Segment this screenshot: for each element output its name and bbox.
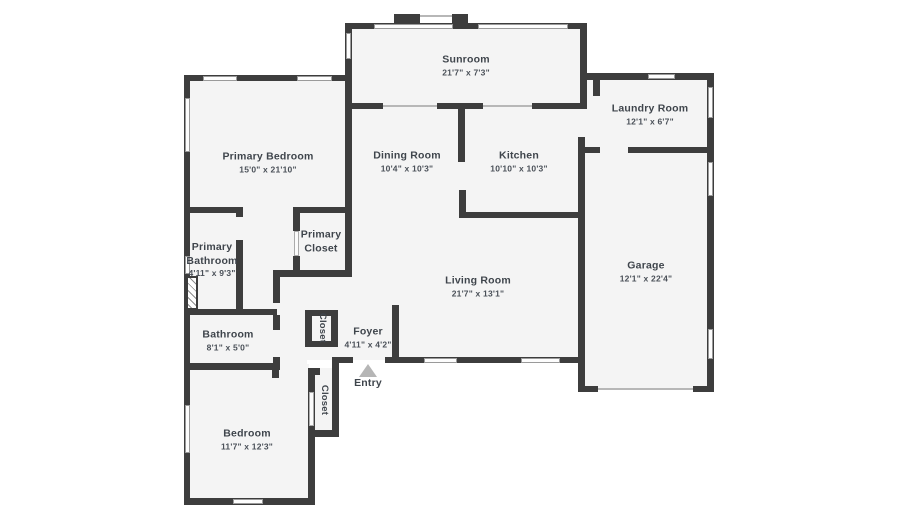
garage-door-line bbox=[598, 388, 693, 390]
window bbox=[648, 74, 675, 79]
window bbox=[185, 405, 190, 453]
window bbox=[233, 499, 263, 504]
room-name: Bathroom bbox=[183, 329, 273, 343]
floor-hall-strip bbox=[242, 211, 274, 311]
room-label-primary-bathroom: Primary Bathroom 4'11" x 9'3" bbox=[181, 241, 243, 279]
window bbox=[185, 98, 190, 152]
wall bbox=[332, 357, 339, 437]
room-label-foyer: Foyer 4'11" x 4'2" bbox=[338, 326, 398, 351]
room-name: Primary Bathroom bbox=[181, 241, 243, 268]
wall bbox=[308, 368, 320, 375]
wall bbox=[337, 357, 353, 363]
window bbox=[203, 76, 237, 81]
room-dims: 4'11" x 4'2" bbox=[338, 339, 398, 350]
wall bbox=[628, 147, 714, 153]
wall bbox=[272, 363, 279, 378]
room-name: Closet bbox=[318, 385, 330, 415]
room-dims: 8'1" x 5'0" bbox=[183, 342, 273, 353]
chimney-line bbox=[420, 15, 452, 17]
floor-bedroom-door bbox=[277, 364, 309, 372]
window bbox=[297, 76, 332, 81]
sliding-door-line bbox=[483, 105, 532, 107]
wall bbox=[580, 23, 587, 109]
room-label-laundry: Laundry Room 12'1" x 6'7" bbox=[595, 103, 705, 128]
room-dims: 12'1" x 6'7" bbox=[595, 116, 705, 127]
window bbox=[708, 329, 713, 359]
wall bbox=[275, 270, 352, 277]
wall bbox=[593, 80, 600, 96]
room-name: Primary Closet bbox=[296, 228, 346, 255]
room-name: Laundry Room bbox=[595, 103, 705, 117]
room-label-dining: Dining Room 10'4" x 10'3" bbox=[357, 150, 457, 175]
room-label-primary-bedroom: Primary Bedroom 15'0" x 21'10" bbox=[203, 151, 333, 176]
wall bbox=[693, 386, 714, 392]
wall bbox=[532, 103, 587, 109]
room-dims: 10'4" x 10'3" bbox=[357, 163, 457, 174]
room-dims: 21'7" x 7'3" bbox=[406, 67, 526, 78]
wall-chimney bbox=[452, 14, 468, 25]
window bbox=[708, 162, 713, 196]
window bbox=[424, 358, 457, 363]
floor-plan: Sunroom 21'7" x 7'3" Laundry Room 12'1" … bbox=[0, 0, 900, 529]
wall bbox=[459, 212, 585, 218]
sliding-door-line bbox=[383, 105, 437, 107]
door-panel bbox=[309, 392, 314, 426]
floor-primary-bedroom bbox=[188, 79, 348, 211]
room-name: Bedroom bbox=[197, 428, 297, 442]
room-name: Entry bbox=[338, 377, 398, 391]
room-name: Sunroom bbox=[406, 54, 526, 68]
window bbox=[346, 33, 351, 59]
wall bbox=[293, 207, 352, 213]
room-dims: 21'7" x 13'1" bbox=[423, 288, 533, 299]
room-name: Dining Room bbox=[357, 150, 457, 164]
room-dims: 12'1" x 22'4" bbox=[596, 273, 696, 284]
wall bbox=[345, 109, 352, 277]
floor-hall-lower bbox=[272, 300, 307, 365]
wall bbox=[184, 207, 242, 213]
wall bbox=[236, 207, 243, 217]
window bbox=[521, 358, 560, 363]
wall bbox=[458, 109, 465, 162]
room-label-kitchen: Kitchen 10'10" x 10'3" bbox=[469, 150, 569, 175]
room-label-closet-hall: Closet bbox=[316, 313, 328, 343]
wall bbox=[578, 137, 585, 392]
wall bbox=[308, 368, 315, 498]
shower-hatch bbox=[186, 276, 198, 310]
room-name: Closet bbox=[316, 313, 328, 343]
wall bbox=[578, 386, 598, 392]
room-label-bathroom: Bathroom 8'1" x 5'0" bbox=[183, 329, 273, 354]
room-label-entry: Entry bbox=[338, 377, 398, 391]
wall bbox=[184, 363, 278, 370]
room-label-bedroom: Bedroom 11'7" x 12'3" bbox=[197, 428, 297, 453]
room-name: Foyer bbox=[338, 326, 398, 340]
window bbox=[478, 24, 568, 29]
room-name: Living Room bbox=[423, 275, 533, 289]
entry-arrow-icon bbox=[359, 364, 377, 377]
wall bbox=[273, 270, 280, 303]
room-dims: 11'7" x 12'3" bbox=[197, 441, 297, 452]
room-name: Garage bbox=[596, 260, 696, 274]
wall bbox=[273, 315, 280, 330]
room-label-garage: Garage 12'1" x 22'4" bbox=[596, 260, 696, 285]
room-label-closet-bedroom: Closet bbox=[318, 385, 330, 415]
room-dims: 4'11" x 9'3" bbox=[181, 268, 243, 279]
room-dims: 15'0" x 21'10" bbox=[203, 164, 333, 175]
room-label-living-room: Living Room 21'7" x 13'1" bbox=[423, 275, 533, 300]
room-dims: 10'10" x 10'3" bbox=[469, 163, 569, 174]
window bbox=[374, 24, 453, 29]
room-name: Kitchen bbox=[469, 150, 569, 164]
room-name: Primary Bedroom bbox=[203, 151, 333, 165]
room-label-primary-closet: Primary Closet bbox=[296, 228, 346, 255]
floor-passage-kitchen-laundry bbox=[578, 108, 587, 139]
window bbox=[708, 87, 713, 118]
room-label-sunroom: Sunroom 21'7" x 7'3" bbox=[406, 54, 526, 79]
wall bbox=[578, 147, 600, 153]
